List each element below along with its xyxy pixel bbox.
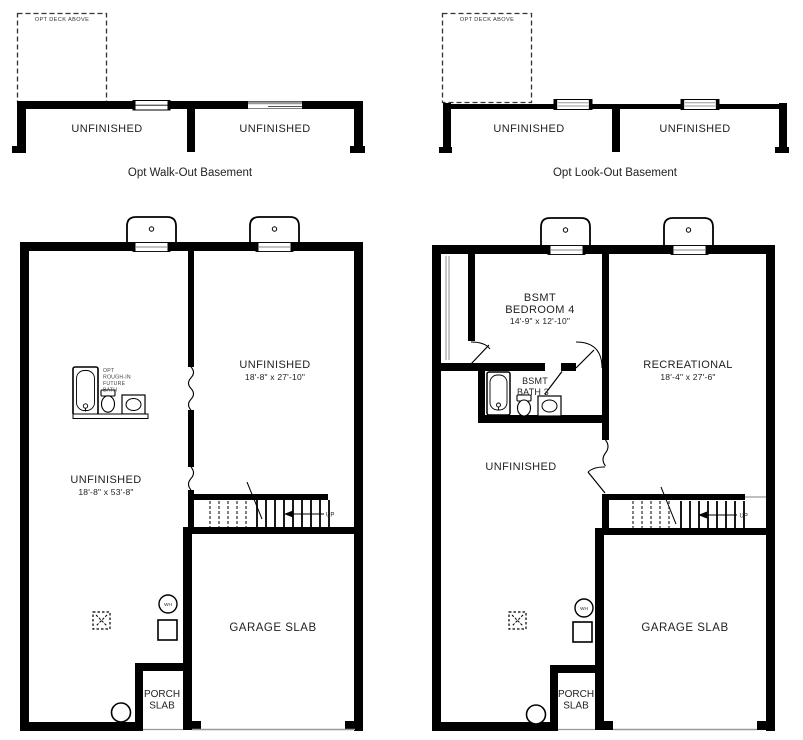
room-dims: 18'-8" x 27'-10" xyxy=(245,372,305,382)
porch-label: PORCH xyxy=(558,689,594,700)
basement-window xyxy=(548,246,585,255)
top-wall xyxy=(20,242,363,251)
up-arrow: UP xyxy=(284,511,334,519)
porch-label: SLAB xyxy=(563,701,589,712)
bath-label: BATH 3 xyxy=(517,387,549,397)
vanity-counter xyxy=(73,414,148,419)
up-label: UP xyxy=(740,514,748,520)
right-wall xyxy=(354,242,363,731)
lookout-basement-diagram: OPT DECK ABOVE UNFINISHED UNFINISHED Opt… xyxy=(439,14,789,180)
window-well xyxy=(250,217,299,243)
water-heater-label: WH xyxy=(580,606,588,611)
bedroom-closet xyxy=(446,254,475,360)
lookout-window xyxy=(554,100,592,110)
stairs: UP xyxy=(183,482,363,534)
rough-in-label: OPT xyxy=(103,368,115,374)
room-label: UNFINISHED xyxy=(485,461,556,473)
up-arrow: UP xyxy=(698,512,748,520)
utility-pad xyxy=(158,620,177,640)
middle-wall xyxy=(187,101,195,152)
room-dims: 18'-8" x 53'-8" xyxy=(78,487,133,497)
room-label: UNFINISHED xyxy=(239,359,310,371)
sink-icon xyxy=(538,396,561,416)
unfinished-basement-plan: UP OPT ROUGH-IN FUTURE BATH xyxy=(20,217,363,731)
finished-basement-plan: UP WH xyxy=(432,218,775,731)
walkout-door-opening xyxy=(248,102,302,109)
right-wall xyxy=(779,103,787,152)
window-well xyxy=(664,218,713,245)
bedroom-door xyxy=(576,342,602,368)
stair-break-line xyxy=(247,482,262,519)
right-wall-foot xyxy=(350,146,365,153)
room-label: UNFINISHED xyxy=(493,123,564,135)
garage-door-jamb xyxy=(345,721,354,730)
bedroom-bottom-wall xyxy=(441,363,545,371)
bath-label: BSMT xyxy=(522,376,548,386)
rough-in-label: FUTURE xyxy=(103,381,126,387)
up-label: UP xyxy=(326,513,334,519)
rough-in-label: BATH xyxy=(103,388,117,394)
room-label: UNFINISHED xyxy=(659,123,730,135)
garage-left-wall xyxy=(595,528,604,730)
porch-label: PORCH xyxy=(144,689,180,700)
water-heater-icon: WH xyxy=(575,599,593,617)
furnace-icon xyxy=(509,612,526,629)
right-wall xyxy=(766,245,775,731)
stairs: UP xyxy=(595,487,775,535)
porch-left-wall xyxy=(135,663,143,730)
room-label: BEDROOM 4 xyxy=(505,304,575,316)
room-label: UNFINISHED xyxy=(71,123,142,135)
middle-wall xyxy=(602,254,609,534)
right-wall xyxy=(354,101,363,149)
closet-door xyxy=(471,342,490,364)
left-wall xyxy=(17,101,26,152)
porch-label: SLAB xyxy=(149,701,175,712)
garage-left-wall xyxy=(183,527,192,730)
garage-label: GARAGE SLAB xyxy=(641,622,728,634)
bath-left-wall xyxy=(478,371,485,417)
middle-wall xyxy=(612,104,620,152)
deck-outline xyxy=(18,14,107,103)
room-label: UNFINISHED xyxy=(239,123,310,135)
deck-outline xyxy=(443,14,532,103)
window-well xyxy=(541,218,590,245)
hall-door xyxy=(588,467,605,493)
water-heater-label: WH xyxy=(164,602,172,607)
left-wall xyxy=(443,103,451,152)
left-wall-foot xyxy=(439,147,452,153)
sink-icon xyxy=(122,395,145,414)
right-wall-foot xyxy=(775,147,789,153)
lookout-window xyxy=(681,100,719,110)
diagram-caption: Opt Walk-Out Basement xyxy=(128,167,253,179)
basement-window xyxy=(256,243,293,252)
rough-in-label: ROUGH-IN xyxy=(103,375,131,381)
basement-window xyxy=(671,246,708,255)
top-wall xyxy=(432,245,775,254)
garage-door-jamb xyxy=(757,721,766,730)
water-heater-icon: WH xyxy=(159,595,177,613)
garage-door-jamb xyxy=(192,721,201,730)
basement-window xyxy=(133,243,170,252)
deck-label: OPT DECK ABOVE xyxy=(460,17,515,23)
bottom-wall xyxy=(20,722,143,731)
left-wall-foot xyxy=(12,146,26,153)
basement-floorplan-sheet: OPT DECK ABOVE UNFINISHED UNFINISHED Opt… xyxy=(0,0,803,740)
left-wall xyxy=(432,245,441,731)
sump-pit-icon xyxy=(527,705,546,724)
porch-top-wall xyxy=(550,665,604,673)
walkout-window xyxy=(133,101,170,111)
room-label: RECREATIONAL xyxy=(643,359,733,371)
window-well xyxy=(127,217,176,243)
walkout-basement-diagram: OPT DECK ABOVE UNFINISHED UNFINISHED Opt… xyxy=(12,14,365,180)
middle-wall xyxy=(188,251,194,528)
deck-label: OPT DECK ABOVE xyxy=(35,17,90,23)
bedroom-bottom-wall xyxy=(561,363,576,371)
room-dims: 14'-9" x 12'-10" xyxy=(510,316,570,326)
left-wall xyxy=(20,242,29,731)
room-label: BSMT xyxy=(524,292,556,304)
porch-left-wall xyxy=(550,665,558,730)
utility-pad xyxy=(573,622,592,642)
room-dims: 18'-4" x 27'-6" xyxy=(660,372,715,382)
garage-label: GARAGE SLAB xyxy=(229,622,316,634)
sump-pit-icon xyxy=(112,703,131,722)
porch-top-wall xyxy=(135,663,192,671)
diagram-caption: Opt Look-Out Basement xyxy=(553,167,678,179)
garage-door-jamb xyxy=(604,721,613,730)
room-label: UNFINISHED xyxy=(70,474,141,486)
rough-in-bath: OPT ROUGH-IN FUTURE BATH xyxy=(73,367,148,419)
furnace-icon xyxy=(93,612,110,629)
